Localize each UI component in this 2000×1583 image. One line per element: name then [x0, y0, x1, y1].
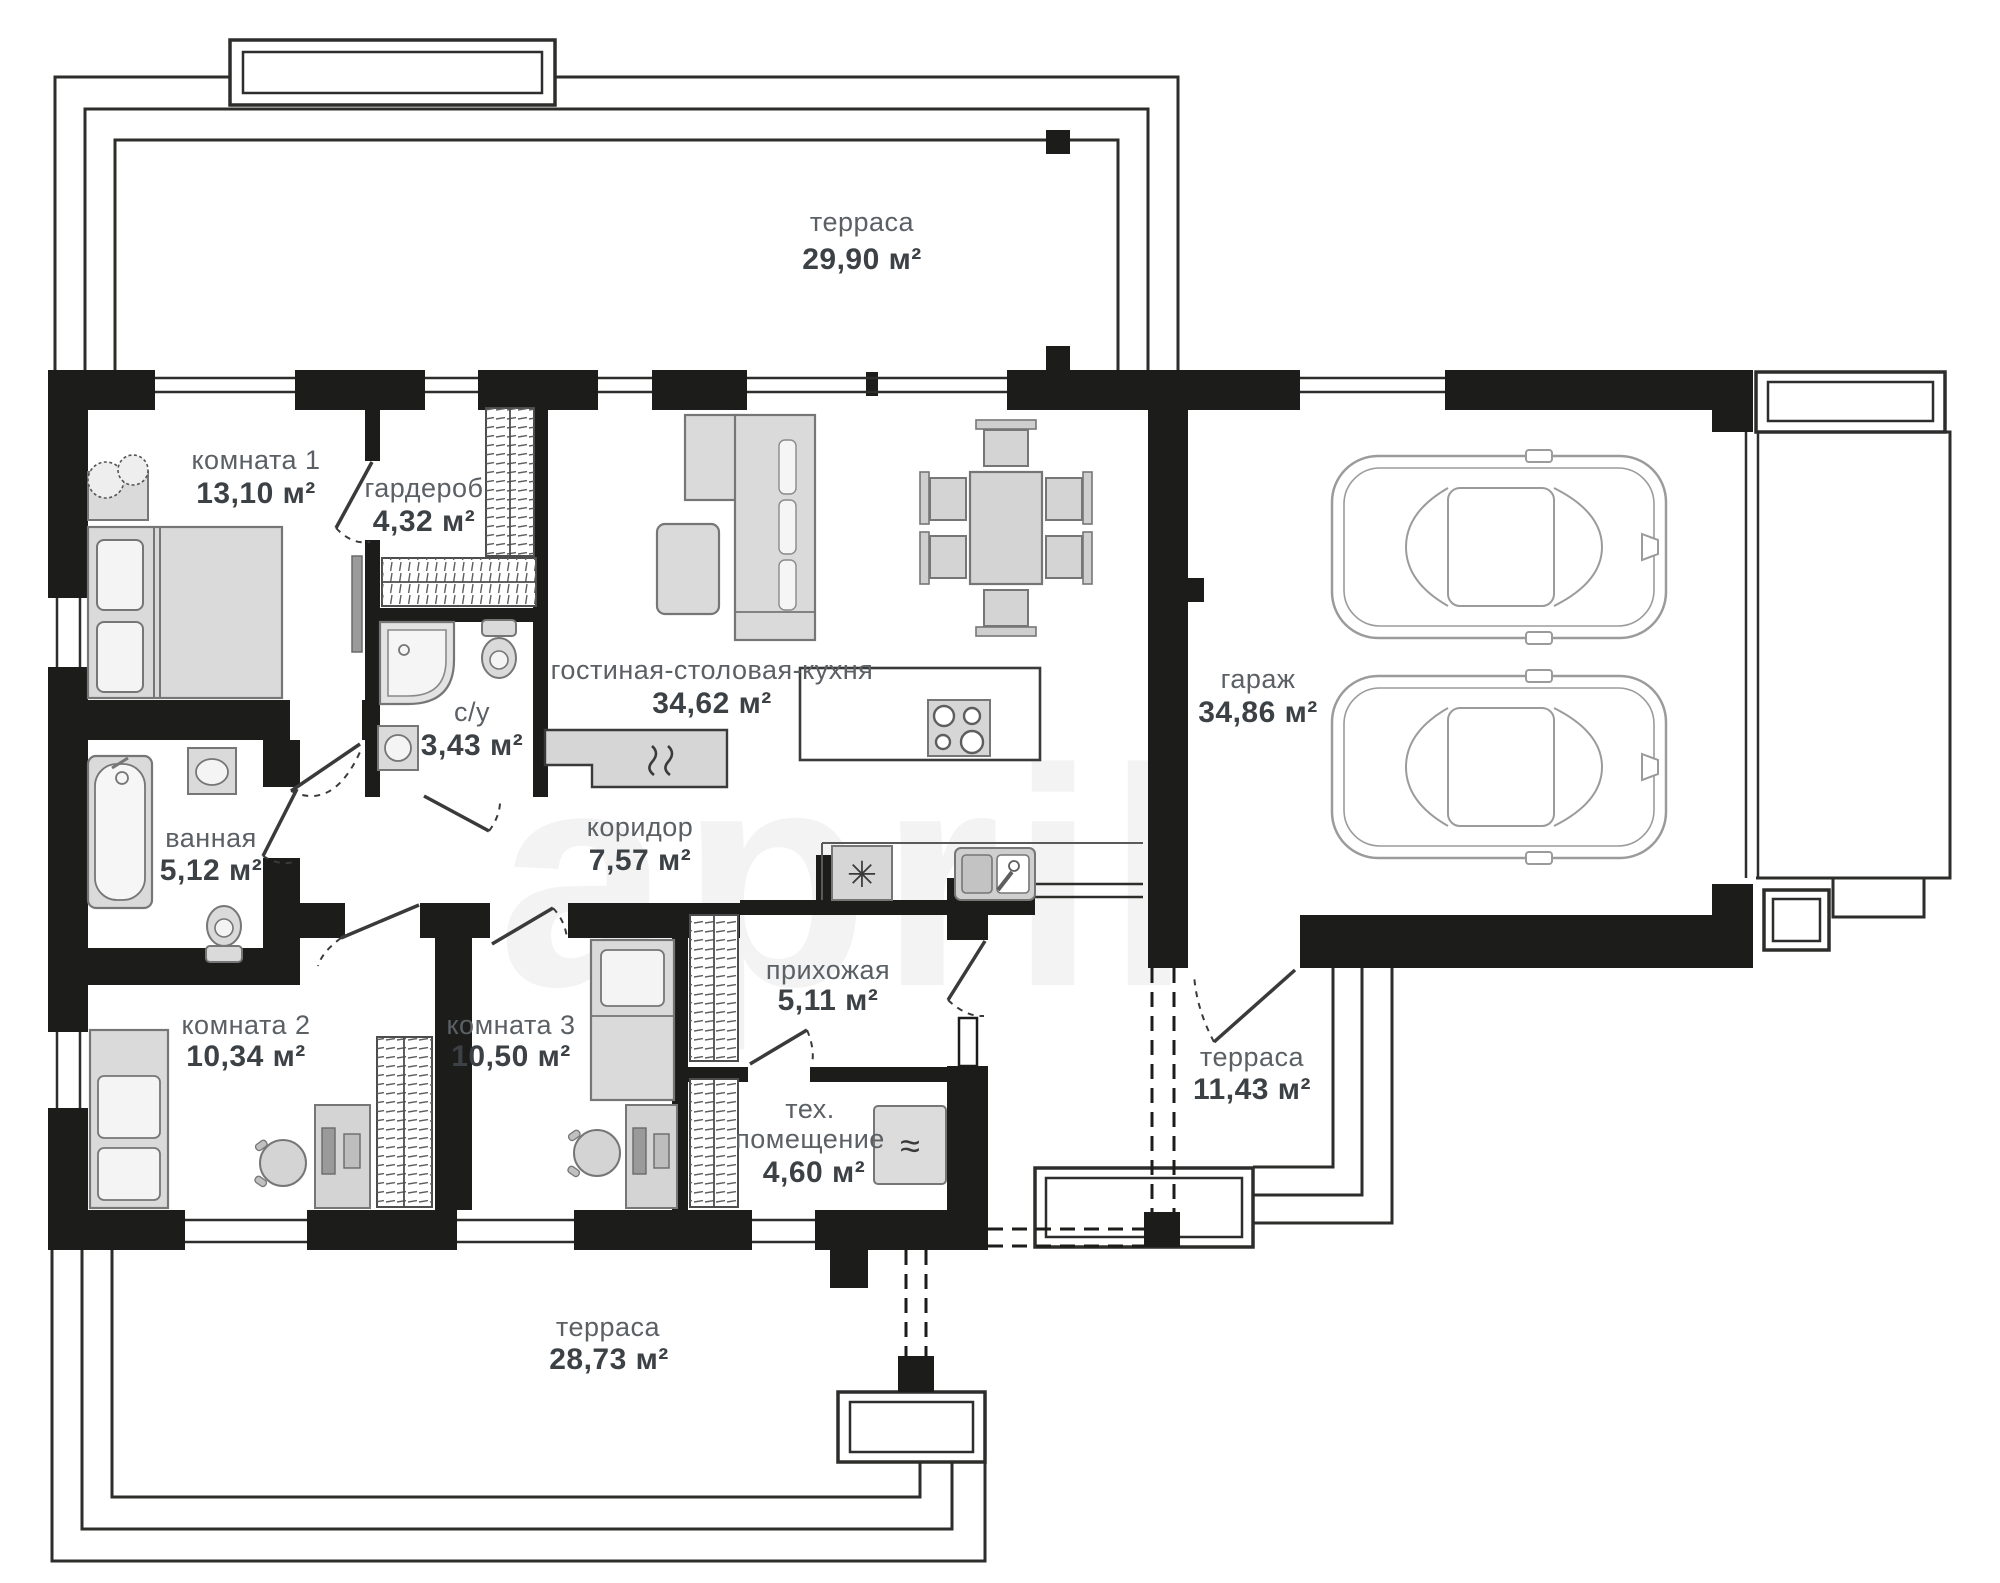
- corridor-name: коридор: [587, 812, 694, 842]
- chair: [930, 478, 966, 520]
- terrace-bottom-area: 28,73 м²: [549, 1343, 669, 1376]
- bathroom-name: ванная: [165, 823, 257, 853]
- chair: [930, 536, 966, 578]
- terrace-bottom-name: терраса: [556, 1312, 661, 1342]
- keyboard-icon: [654, 1134, 669, 1168]
- monitor-icon: [633, 1128, 646, 1174]
- pillow: [97, 622, 143, 692]
- tech-name-line1: тех.: [785, 1094, 835, 1124]
- garage-door: [1746, 432, 1758, 878]
- water-heater-icon: ≈: [900, 1125, 920, 1166]
- corridor-area: 7,57 м²: [589, 844, 691, 877]
- keyboard-icon: [344, 1134, 360, 1168]
- room3-name: комната 3: [446, 1010, 575, 1040]
- terrace-right-area: 11,43 м²: [1193, 1073, 1311, 1106]
- terrace-top-area: 29,90 м²: [802, 243, 922, 276]
- garage-cars: [1332, 450, 1666, 864]
- floor-plan: april: [0, 0, 2000, 1583]
- sofa: [735, 415, 815, 640]
- room2-name: комната 2: [181, 1010, 310, 1040]
- fridge-icon: ✳: [847, 854, 877, 895]
- tech-area: 4,60 м²: [763, 1156, 865, 1189]
- terrace-bottom-outline: [52, 1250, 985, 1561]
- terrace-top-name: терраса: [810, 207, 915, 237]
- chair: [984, 430, 1028, 466]
- wardrobe-name: гардероб: [365, 473, 484, 503]
- terrace-right-name: терраса: [1200, 1042, 1305, 1072]
- chair: [1046, 478, 1082, 520]
- tv-icon: [352, 556, 362, 652]
- coffee-table: [657, 524, 719, 614]
- living-area: 34,62 м²: [652, 687, 772, 720]
- pillow: [97, 540, 143, 610]
- monitor-icon: [322, 1128, 335, 1174]
- su-area: 3,43 м²: [421, 729, 523, 762]
- room1-area: 13,10 м²: [196, 477, 316, 510]
- toilet: [482, 620, 516, 636]
- chair: [1046, 536, 1082, 578]
- room3-area: 10,50 м²: [451, 1040, 571, 1073]
- living-name: гостиная-столовая-кухня: [551, 655, 874, 685]
- hallway-area: 5,11 м²: [778, 984, 879, 1017]
- room1-name: комната 1: [191, 445, 320, 475]
- hallway-name: прихожая: [766, 955, 890, 985]
- garage-area: 34,86 м²: [1198, 696, 1318, 729]
- chair: [260, 1140, 306, 1186]
- entrance-jamb: [959, 1018, 977, 1066]
- garage-name: гараж: [1221, 664, 1296, 694]
- su-name: с/у: [454, 697, 490, 727]
- chair: [574, 1130, 620, 1176]
- chair: [984, 590, 1028, 626]
- room2-area: 10,34 м²: [186, 1040, 306, 1073]
- driveway-outline: [1756, 372, 1950, 950]
- tech-name-line2: помещение: [735, 1124, 885, 1154]
- plant-icon: [118, 455, 148, 485]
- terrace-top-steps: [230, 40, 555, 105]
- floor-plan-page: april: [0, 0, 2000, 1583]
- terrace-top-outline: [55, 77, 1178, 370]
- bathroom-area: 5,12 м²: [160, 854, 262, 887]
- wardrobe-area: 4,32 м²: [373, 505, 475, 538]
- sofa-chaise: [685, 415, 737, 500]
- dining-table: [970, 472, 1042, 584]
